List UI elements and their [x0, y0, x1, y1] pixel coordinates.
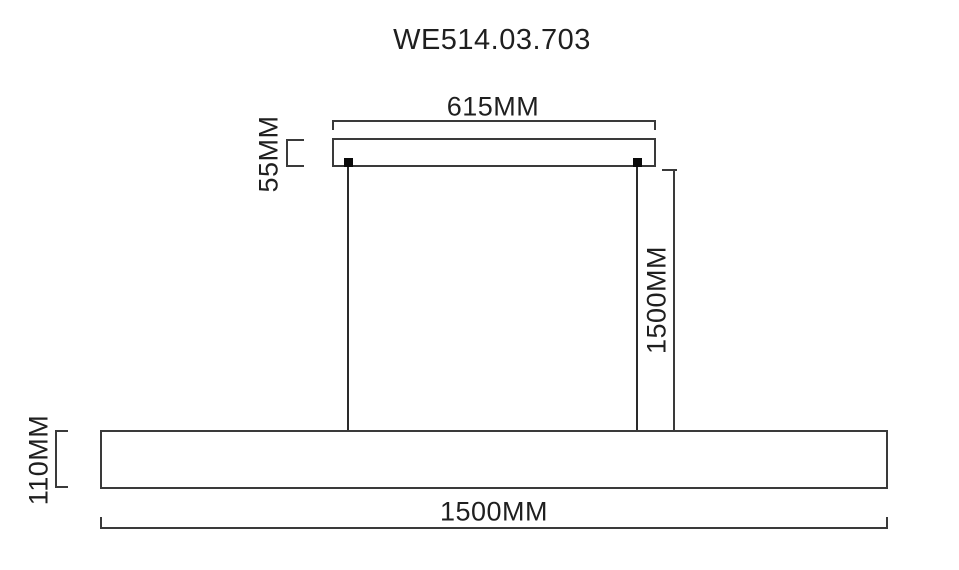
- drawing-title: WE514.03.703: [393, 24, 591, 57]
- dim-line-canopy-width: [332, 120, 656, 122]
- dim-line-suspension-length: [673, 169, 675, 430]
- dim-tick-canopy-height-top: [286, 139, 304, 141]
- canopy-outline: [332, 138, 656, 167]
- suspension-wire-right: [636, 167, 638, 430]
- dim-label-fixture-width: 1500MM: [440, 497, 548, 528]
- dim-line-fixture-width: [100, 527, 888, 529]
- dim-label-canopy-width: 615MM: [447, 92, 540, 123]
- dim-tick-canopy-width-right: [654, 120, 656, 130]
- dim-line-fixture-height: [55, 430, 57, 488]
- fixture-outline: [100, 430, 888, 489]
- technical-drawing: WE514.03.703 615MM 55MM 1500MM 110MM 150…: [0, 0, 959, 570]
- dim-label-canopy-height: 55MM: [254, 115, 285, 192]
- dim-tick-fixture-width-right: [886, 517, 888, 529]
- wire-mount-right: [633, 158, 642, 167]
- dim-tick-fixture-width-left: [100, 517, 102, 529]
- dim-label-fixture-height: 110MM: [24, 415, 55, 506]
- dim-tick-canopy-height-bottom: [286, 165, 304, 167]
- dim-line-canopy-height: [286, 139, 288, 167]
- dim-label-suspension-length: 1500MM: [642, 246, 673, 354]
- dim-tick-canopy-width-left: [332, 120, 334, 130]
- dim-tick-fixture-height-top: [55, 430, 68, 432]
- wire-mount-left: [344, 158, 353, 167]
- suspension-wire-left: [347, 167, 349, 430]
- dim-tick-fixture-height-bottom: [55, 486, 68, 488]
